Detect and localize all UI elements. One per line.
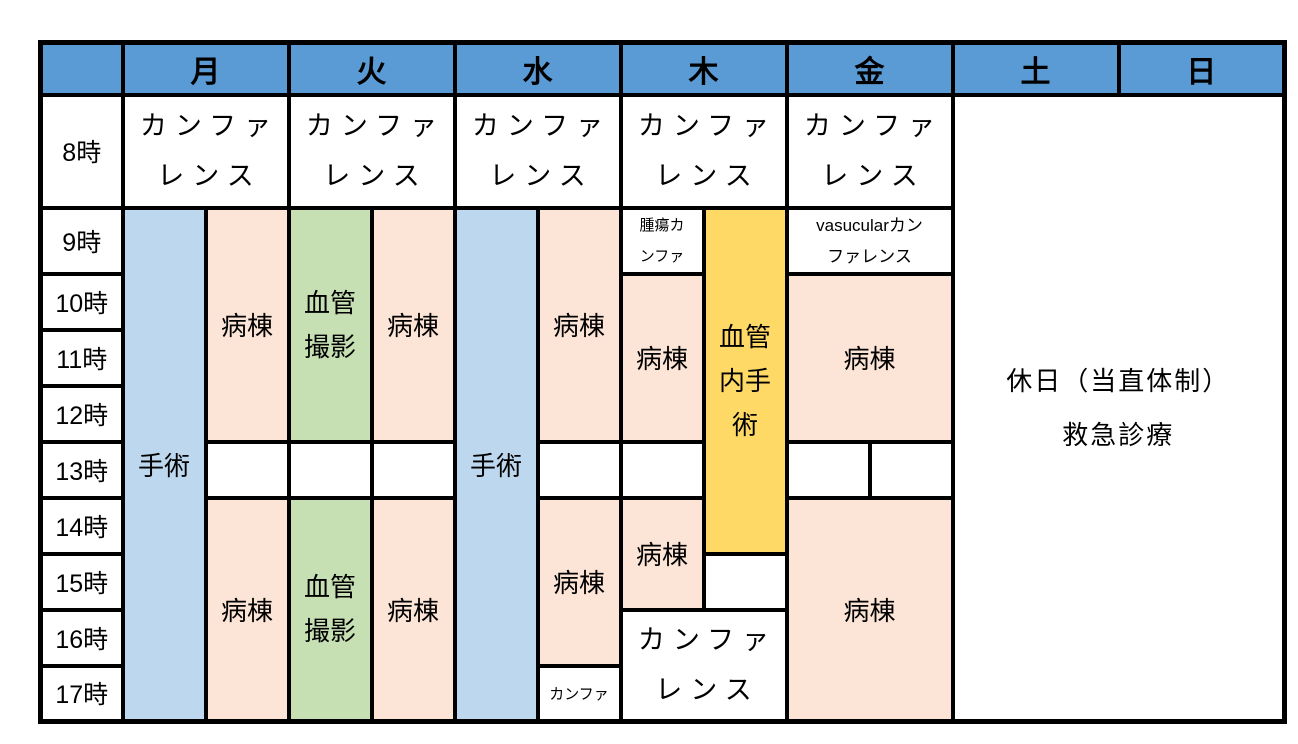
cell-text: レンス [291,151,453,201]
cell-text: レンス [623,665,785,715]
cell-text: 血管 [706,315,785,359]
cell-wed-ward-am: 病棟 [538,208,621,442]
cell-text: レンス [623,151,785,201]
cell-text: カンファ [125,101,287,151]
cell-text: カンファ [291,101,453,151]
time-label-15: 15時 [41,554,123,610]
day-header-fri: 金 [787,43,953,95]
cell-text: vasucularカン [789,210,951,241]
time-label-14: 14時 [41,498,123,554]
cell-fri-ward-am: 病棟 [787,274,953,442]
cell-text: ファレンス [789,241,951,272]
cell-tue-break-right [372,442,455,498]
weekly-schedule-table: 月 火 水 木 金 土 日 8時 カンファ レンス カンファ レンス カンファ … [38,40,1287,724]
cell-tue-ward-am: 病棟 [372,208,455,442]
time-label-12: 12時 [41,386,123,442]
time-label-11: 11時 [41,330,123,386]
day-header-wed: 水 [455,43,621,95]
cell-thu-endovascular-surgery: 血管 内手 術 [704,208,787,554]
cell-text: 撮影 [291,609,370,653]
cell-wed-break [538,442,621,498]
cell-thu-late-break [704,554,787,610]
cell-tue-angiography-am: 血管 撮影 [289,208,372,442]
cell-tue-ward-pm: 病棟 [372,498,455,722]
cell-thu-ward-pm: 病棟 [621,498,704,610]
cell-tue-break-left [289,442,372,498]
cell-text: 腫瘍カ [623,210,702,241]
cell-text: カンファ [789,101,951,151]
cell-text: 内手 [706,359,785,403]
cell-wed-evening-conference: カンファ [538,666,621,722]
cell-thu-evening-conference: カンファ レンス [621,610,787,722]
cell-text: カンファ [623,615,785,665]
cell-thu-tumor-conference: 腫瘍カ ンファ [621,208,704,274]
time-label-13: 13時 [41,442,123,498]
cell-fri-ward-pm: 病棟 [787,498,953,722]
cell-fri-conference: カンファ レンス [787,95,953,208]
cell-wed-conference: カンファ レンス [455,95,621,208]
day-header-mon: 月 [123,43,289,95]
cell-fri-vascular-conference: vasucularカン ファレンス [787,208,953,274]
cell-text: レンス [789,151,951,201]
cell-mon-ward-am: 病棟 [206,208,289,442]
cell-thu-conference: カンファ レンス [621,95,787,208]
cell-mon-break [206,442,289,498]
cell-mon-conference: カンファ レンス [123,95,289,208]
cell-thu-break [621,442,704,498]
corner-cell [41,43,123,95]
cell-mon-surgery: 手術 [123,208,206,722]
cell-thu-ward-am: 病棟 [621,274,704,442]
cell-wed-surgery: 手術 [455,208,538,722]
cell-text: 血管 [291,281,370,325]
time-label-10: 10時 [41,274,123,330]
cell-text: 術 [706,403,785,447]
day-header-sat: 土 [953,43,1119,95]
cell-text: カンファ [623,101,785,151]
cell-fri-break-right [870,442,953,498]
cell-text: カンファ [457,101,619,151]
cell-text: レンス [125,151,287,201]
day-header-tue: 火 [289,43,455,95]
cell-fri-break-left [787,442,870,498]
day-header-thu: 木 [621,43,787,95]
cell-tue-angiography-pm: 血管 撮影 [289,498,372,722]
cell-text: レンス [457,151,619,201]
cell-tue-conference: カンファ レンス [289,95,455,208]
cell-text: ンファ [623,241,702,272]
cell-mon-ward-pm: 病棟 [206,498,289,722]
day-header-sun: 日 [1119,43,1285,95]
cell-text: 休日（当直体制） [955,354,1283,408]
cell-text: 救急診療 [955,408,1283,462]
cell-text: 血管 [291,565,370,609]
time-label-8: 8時 [41,95,123,208]
cell-wed-ward-pm: 病棟 [538,498,621,666]
cell-text: 撮影 [291,325,370,369]
time-label-17: 17時 [41,666,123,722]
cell-weekend-duty: 休日（当直体制） 救急診療 [953,95,1285,722]
time-label-9: 9時 [41,208,123,274]
header-row: 月 火 水 木 金 土 日 [41,43,1285,95]
time-label-16: 16時 [41,610,123,666]
row-8: 8時 カンファ レンス カンファ レンス カンファ レンス カンファ レンス カ… [41,95,1285,208]
